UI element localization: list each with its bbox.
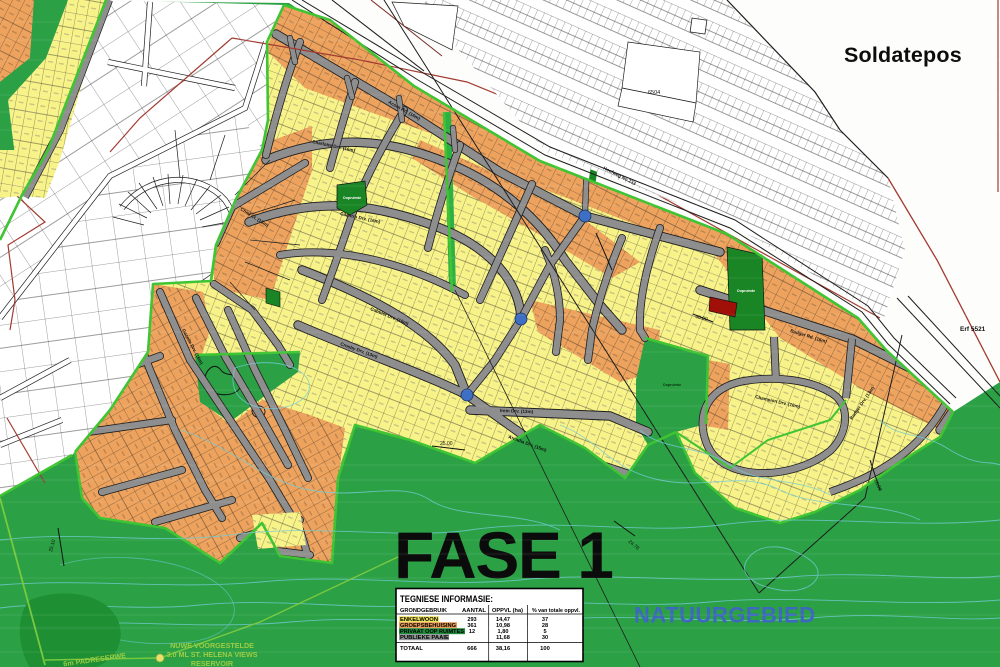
svg-text:OPPVL (ha): OPPVL (ha) [492, 608, 523, 614]
svg-text:12: 12 [469, 629, 475, 635]
svg-text:Soldatepos: Soldatepos [844, 43, 962, 67]
svg-text:3.0 ML ST. HELENA VIEWS: 3.0 ML ST. HELENA VIEWS [166, 650, 257, 659]
svg-text:NUWE VOORGESTELDE: NUWE VOORGESTELDE [170, 641, 254, 650]
svg-text:TEGNIESE INFORMASIE:: TEGNIESE INFORMASIE: [400, 594, 493, 605]
svg-text:38,16: 38,16 [496, 646, 511, 652]
svg-text:666: 666 [467, 646, 477, 652]
svg-text:Oopruimte: Oopruimte [343, 196, 361, 200]
svg-text:AANTAL: AANTAL [462, 608, 487, 614]
svg-text:GRONDGEBRUIK: GRONDGEBRUIK [400, 608, 447, 614]
svg-text:100: 100 [540, 646, 550, 652]
svg-text:30: 30 [542, 635, 548, 641]
svg-text:TOTAAL: TOTAAL [400, 646, 423, 652]
svg-text:% van totale oppvl.: % van totale oppvl. [532, 608, 580, 614]
svg-text:PUBLIEKE PAAIE: PUBLIEKE PAAIE [400, 635, 449, 641]
svg-text:25.00: 25.00 [440, 441, 453, 447]
svg-text:RESERVOIR: RESERVOIR [191, 659, 234, 667]
svg-text:Oopruimte: Oopruimte [737, 289, 755, 293]
svg-text:Oopruimte: Oopruimte [663, 383, 681, 387]
svg-text:11,68: 11,68 [496, 635, 510, 641]
